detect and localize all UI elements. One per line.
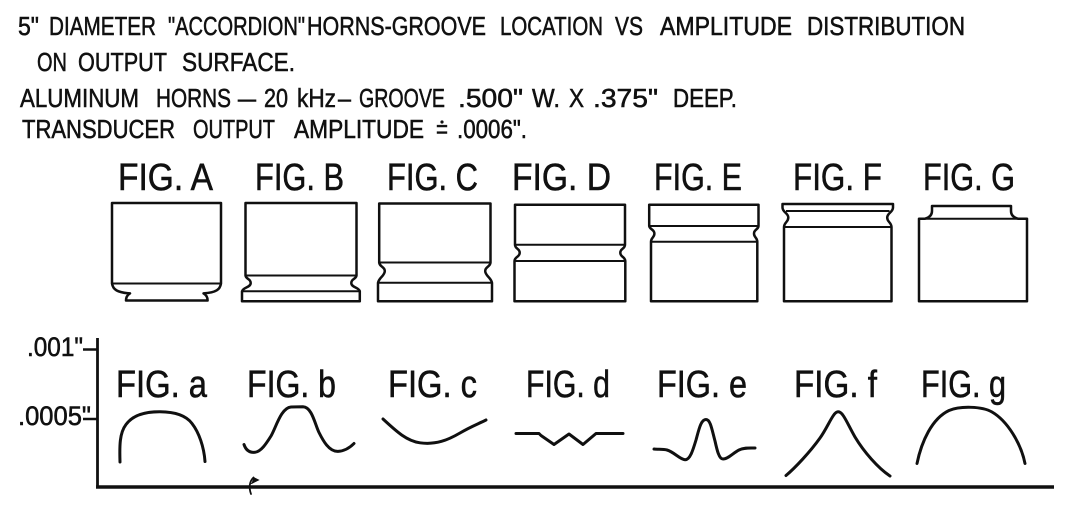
svg-text:20: 20 [264, 83, 288, 113]
svg-text:FIG. D: FIG. D [512, 157, 611, 199]
svg-text:HORNS-GROOVE: HORNS-GROOVE [307, 11, 486, 41]
svg-text:–: – [238, 83, 257, 113]
svg-text:DISTRIBUTION: DISTRIBUTION [807, 11, 965, 41]
svg-text:FIG. a: FIG. a [116, 364, 208, 406]
svg-text:W.: W. [532, 83, 560, 113]
svg-text:ON: ON [37, 47, 67, 77]
svg-text:FIG. b: FIG. b [247, 364, 336, 406]
svg-text:5": 5" [18, 11, 39, 41]
svg-text:LOCATION: LOCATION [500, 11, 603, 41]
svg-text:FIG. F: FIG. F [793, 157, 882, 199]
svg-text:.0005": .0005" [18, 401, 91, 431]
svg-text:FIG. C: FIG. C [387, 157, 478, 199]
svg-text:.0006".: .0006". [457, 114, 527, 144]
svg-text:–: – [338, 83, 351, 113]
svg-text:FIG. c: FIG. c [388, 364, 477, 406]
svg-text:.375": .375" [593, 83, 658, 113]
svg-text:HORNS: HORNS [156, 83, 231, 113]
svg-text:.500": .500" [458, 83, 523, 113]
svg-text:OUTPUT: OUTPUT [78, 47, 167, 77]
svg-text:TRANSDUCER: TRANSDUCER [22, 114, 175, 144]
svg-text:FIG. B: FIG. B [255, 157, 344, 199]
svg-text:FIG. g: FIG. g [921, 364, 1006, 406]
svg-text:FIG. f: FIG. f [794, 364, 877, 406]
svg-text:FIG. d: FIG. d [526, 364, 610, 406]
svg-text:GROOVE: GROOVE [359, 83, 445, 113]
svg-text:OUTPUT: OUTPUT [193, 114, 275, 144]
svg-text:SURFACE.: SURFACE. [182, 47, 295, 77]
svg-text:=: = [436, 114, 448, 144]
svg-text:AMPLITUDE: AMPLITUDE [660, 11, 792, 41]
svg-text:ALUMINUM: ALUMINUM [20, 83, 139, 113]
svg-text:.001": .001" [27, 332, 83, 362]
svg-text:DEEP.: DEEP. [673, 83, 737, 113]
svg-text:AMPLITUDE: AMPLITUDE [294, 114, 424, 144]
svg-text:FIG. A: FIG. A [118, 157, 214, 199]
svg-text:X: X [569, 83, 584, 113]
svg-text:FIG. e: FIG. e [657, 364, 747, 406]
svg-text:VS: VS [615, 11, 643, 41]
svg-text:"ACCORDION": "ACCORDION" [168, 11, 305, 41]
svg-text:kHz: kHz [297, 83, 336, 113]
svg-text:DIAMETER: DIAMETER [49, 11, 156, 41]
svg-text:FIG. G: FIG. G [923, 157, 1015, 199]
svg-text:FIG. E: FIG. E [654, 157, 742, 199]
